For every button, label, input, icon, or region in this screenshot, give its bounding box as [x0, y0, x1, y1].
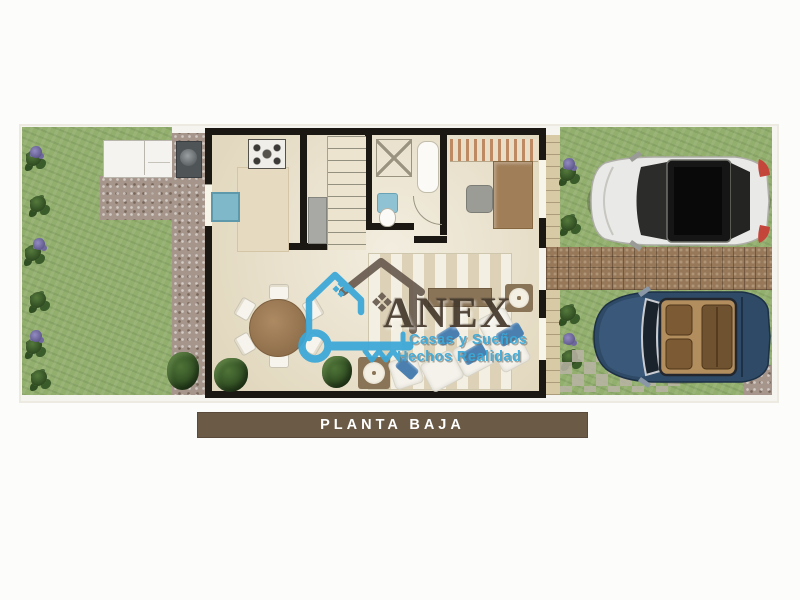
floor-label-bar: PLANTA BAJA — [197, 412, 588, 438]
purple-flower-icon — [563, 333, 575, 345]
key-bow — [302, 333, 328, 359]
purple-flower-icon — [33, 238, 45, 250]
front-seat — [666, 339, 692, 369]
rear-window — [731, 163, 750, 239]
wall-north — [205, 128, 546, 135]
purple-flower-icon — [30, 330, 42, 342]
purple-flower-icon — [30, 146, 42, 158]
front-seat — [666, 305, 692, 335]
bbq-grill — [176, 141, 202, 178]
floorplan-render: ANEX Casas y Sueños Hechos Realidad PLAN… — [0, 0, 800, 600]
wall-west-lower — [205, 226, 212, 398]
watermark: ANEX Casas y Sueños Hechos Realidad — [278, 256, 548, 376]
windshield — [637, 162, 668, 240]
kitchen-sink-icon — [211, 192, 240, 222]
tagline-line2: Hechos Realidad — [397, 349, 521, 365]
wall-stairs-bath — [365, 135, 372, 230]
desk — [493, 161, 533, 229]
wall-south — [205, 391, 546, 398]
key-teeth — [365, 351, 400, 360]
windshield-frame — [642, 299, 660, 375]
sunroof — [674, 167, 722, 235]
grill-burner-icon — [180, 149, 197, 166]
brand-name: ANEX — [383, 292, 513, 335]
kitchen-island — [237, 167, 289, 252]
office-chair-icon — [466, 185, 493, 213]
east-window-opening — [539, 160, 546, 218]
wall-east-2 — [539, 218, 546, 248]
taillight — [758, 159, 770, 177]
garden-gravel-patch — [100, 176, 172, 220]
floor-label: PLANTA BAJA — [320, 417, 465, 433]
wall-west-upper — [205, 128, 212, 184]
outdoor-counter-divider — [144, 141, 145, 175]
taillight — [758, 225, 770, 243]
purple-flower-icon — [563, 158, 575, 170]
wall-bath-corner — [414, 236, 447, 243]
staircase — [327, 136, 366, 250]
wall-east-1 — [539, 128, 546, 160]
white-suv — [583, 150, 773, 252]
tagline-line1: Casas y Sueños — [409, 332, 527, 348]
toilet-bowl-icon — [379, 208, 396, 227]
blue-convertible — [590, 285, 772, 389]
refrigerator-icon — [308, 197, 327, 244]
outdoor-counter — [103, 140, 176, 178]
paved-driveway-band — [546, 247, 772, 290]
stove-icon — [248, 139, 286, 169]
outdoor-counter-line — [148, 162, 170, 163]
shower-icon — [376, 139, 412, 177]
pergola-icon — [450, 139, 538, 162]
wall-kitchen-stairs — [300, 135, 307, 250]
bathtub-icon — [417, 141, 439, 193]
